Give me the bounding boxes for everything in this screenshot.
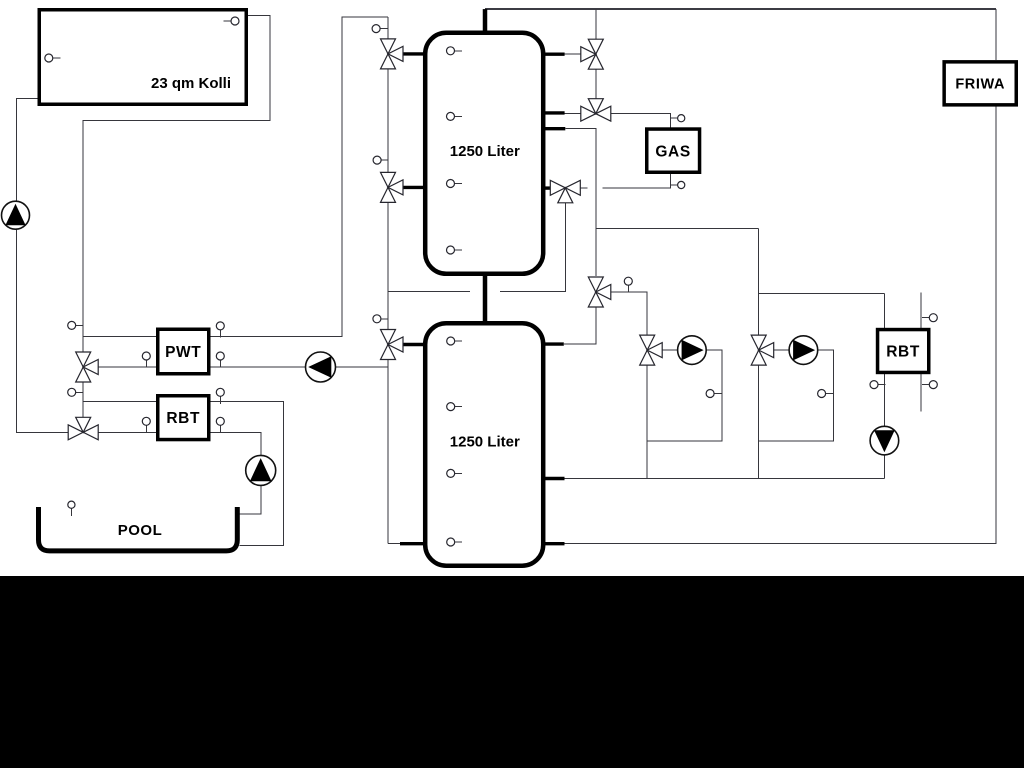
svg-text:PWT: PWT bbox=[165, 344, 201, 361]
svg-text:POOL: POOL bbox=[118, 522, 163, 539]
svg-text:FRIWA: FRIWA bbox=[955, 77, 1005, 93]
svg-text:GAS: GAS bbox=[655, 143, 690, 160]
svg-text:23 qm Kolli: 23 qm Kolli bbox=[151, 75, 231, 92]
svg-text:RBT: RBT bbox=[886, 344, 920, 361]
svg-text:RBT: RBT bbox=[166, 410, 200, 427]
svg-text:1250 Liter: 1250 Liter bbox=[450, 433, 520, 450]
svg-text:1250 Liter: 1250 Liter bbox=[450, 143, 520, 160]
